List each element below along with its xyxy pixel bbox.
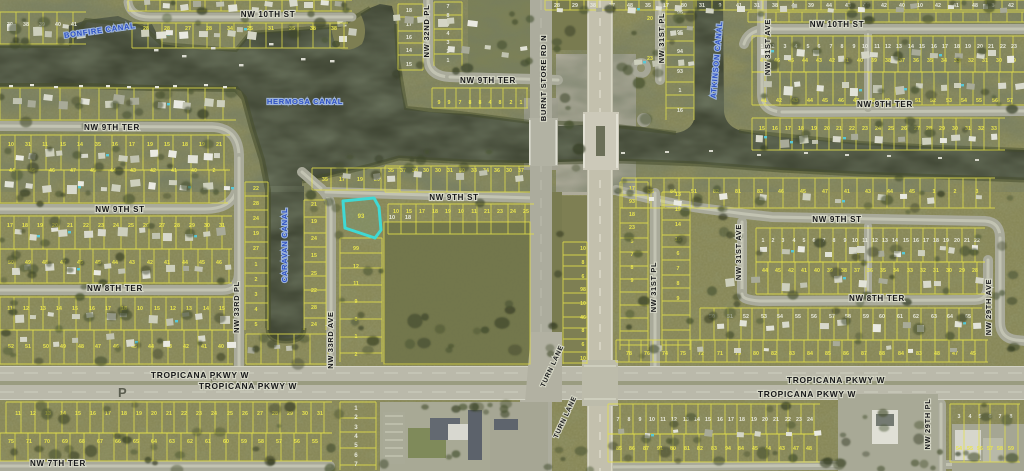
svg-text:TROPICANA PKWY W: TROPICANA PKWY W <box>758 389 856 399</box>
svg-text:23: 23 <box>629 225 635 231</box>
svg-text:NW 32ND PL: NW 32ND PL <box>422 5 431 58</box>
svg-text:10: 10 <box>862 44 868 50</box>
svg-text:8: 8 <box>631 265 634 271</box>
svg-text:21: 21 <box>484 209 490 215</box>
svg-text:16: 16 <box>717 417 723 423</box>
svg-text:98: 98 <box>580 287 586 293</box>
svg-text:1: 1 <box>355 334 358 340</box>
svg-text:NW 31ST PL: NW 31ST PL <box>657 13 666 64</box>
svg-text:23: 23 <box>1011 44 1017 50</box>
svg-text:32: 32 <box>920 268 926 274</box>
svg-text:43: 43 <box>779 446 785 452</box>
svg-text:46: 46 <box>49 168 55 174</box>
svg-text:47: 47 <box>822 189 828 195</box>
svg-text:NW 10TH ST: NW 10TH ST <box>241 10 296 19</box>
svg-text:29: 29 <box>959 268 965 274</box>
svg-text:35: 35 <box>645 3 651 9</box>
svg-text:9: 9 <box>438 100 441 106</box>
svg-text:NW 31ST AVE: NW 31ST AVE <box>763 19 772 75</box>
svg-text:94: 94 <box>725 446 731 452</box>
svg-text:10: 10 <box>580 356 586 362</box>
svg-text:33: 33 <box>991 126 997 132</box>
svg-text:39: 39 <box>871 58 877 64</box>
svg-text:TROPICANA PKWY W: TROPICANA PKWY W <box>199 381 297 391</box>
svg-text:17: 17 <box>7 223 13 229</box>
svg-text:26: 26 <box>242 411 248 417</box>
svg-text:19: 19 <box>147 142 153 148</box>
svg-text:14: 14 <box>56 306 62 312</box>
svg-text:15: 15 <box>759 126 765 132</box>
svg-text:47: 47 <box>793 446 799 452</box>
svg-text:42: 42 <box>183 344 189 350</box>
svg-text:59: 59 <box>1008 446 1014 452</box>
svg-text:4: 4 <box>255 307 258 313</box>
svg-text:15: 15 <box>311 253 317 259</box>
svg-text:30: 30 <box>946 268 952 274</box>
svg-text:16: 16 <box>772 126 778 132</box>
svg-text:81: 81 <box>735 189 741 195</box>
svg-text:30: 30 <box>302 411 308 417</box>
svg-text:25: 25 <box>523 209 529 215</box>
svg-text:24: 24 <box>311 236 317 242</box>
svg-text:18: 18 <box>121 411 127 417</box>
svg-text:15: 15 <box>903 238 909 244</box>
svg-text:42: 42 <box>788 268 794 274</box>
svg-text:8: 8 <box>582 328 585 334</box>
svg-text:44: 44 <box>807 98 813 104</box>
svg-text:21: 21 <box>166 411 172 417</box>
svg-text:14: 14 <box>203 306 209 312</box>
svg-text:45: 45 <box>970 351 976 357</box>
svg-text:30: 30 <box>423 168 429 174</box>
svg-text:3: 3 <box>255 292 258 298</box>
svg-text:31: 31 <box>933 268 939 274</box>
svg-text:19: 19 <box>253 231 259 237</box>
svg-text:43: 43 <box>130 168 136 174</box>
svg-text:30: 30 <box>996 58 1002 64</box>
svg-text:30: 30 <box>952 126 958 132</box>
svg-text:38: 38 <box>23 22 29 28</box>
svg-text:11: 11 <box>353 281 359 287</box>
svg-text:16: 16 <box>931 44 937 50</box>
svg-text:71: 71 <box>26 439 32 445</box>
svg-text:5: 5 <box>255 322 258 328</box>
svg-text:58: 58 <box>258 439 264 445</box>
svg-text:43: 43 <box>129 260 135 266</box>
svg-text:1: 1 <box>354 405 358 412</box>
svg-text:36: 36 <box>913 58 919 64</box>
svg-text:56: 56 <box>294 439 300 445</box>
svg-text:43: 43 <box>816 58 822 64</box>
svg-text:16: 16 <box>913 238 919 244</box>
svg-text:29: 29 <box>189 223 195 229</box>
svg-text:61: 61 <box>897 314 903 320</box>
svg-text:70: 70 <box>44 439 50 445</box>
svg-text:17: 17 <box>129 142 135 148</box>
svg-text:2: 2 <box>355 352 358 358</box>
svg-text:9: 9 <box>639 417 642 423</box>
svg-text:46: 46 <box>580 315 586 321</box>
svg-text:20: 20 <box>824 126 830 132</box>
svg-text:9: 9 <box>853 44 856 50</box>
svg-text:38: 38 <box>772 3 778 9</box>
svg-text:CARAVAN CANAL: CARAVAN CANAL <box>280 208 289 283</box>
svg-text:28: 28 <box>253 201 259 207</box>
svg-text:42: 42 <box>776 98 782 104</box>
svg-text:8: 8 <box>841 44 844 50</box>
svg-text:22: 22 <box>253 186 259 192</box>
svg-text:3: 3 <box>354 424 358 431</box>
svg-text:38: 38 <box>885 58 891 64</box>
svg-text:11: 11 <box>471 209 477 215</box>
svg-text:18: 18 <box>182 142 188 148</box>
svg-text:10: 10 <box>389 215 395 221</box>
svg-text:84: 84 <box>738 446 744 452</box>
svg-text:12: 12 <box>353 264 359 270</box>
svg-text:28: 28 <box>206 26 212 32</box>
svg-text:64: 64 <box>947 314 953 320</box>
svg-text:44: 44 <box>826 3 832 9</box>
svg-text:5: 5 <box>807 44 810 50</box>
svg-text:17: 17 <box>942 44 948 50</box>
svg-text:21: 21 <box>216 142 222 148</box>
svg-text:16: 16 <box>677 108 683 114</box>
svg-text:20: 20 <box>647 16 653 22</box>
svg-text:93: 93 <box>677 69 683 75</box>
svg-text:4: 4 <box>447 31 450 37</box>
svg-text:15: 15 <box>75 411 81 417</box>
svg-text:3: 3 <box>784 44 787 50</box>
svg-text:62: 62 <box>187 439 193 445</box>
svg-text:NW 8TH TER: NW 8TH TER <box>849 294 905 303</box>
svg-text:5: 5 <box>354 442 358 449</box>
svg-text:17: 17 <box>923 238 929 244</box>
svg-text:TROPICANA PKWY W: TROPICANA PKWY W <box>787 375 885 385</box>
svg-text:65: 65 <box>133 439 139 445</box>
svg-text:10: 10 <box>580 301 586 307</box>
svg-text:23: 23 <box>497 209 503 215</box>
svg-text:45: 45 <box>199 260 205 266</box>
svg-text:37: 37 <box>854 268 860 274</box>
svg-text:63: 63 <box>931 314 937 320</box>
svg-text:NW 9TH TER: NW 9TH TER <box>857 100 913 109</box>
svg-text:28: 28 <box>174 223 180 229</box>
svg-text:23: 23 <box>796 417 802 423</box>
svg-text:40: 40 <box>55 22 61 28</box>
svg-text:45: 45 <box>775 268 781 274</box>
svg-text:66: 66 <box>115 439 121 445</box>
svg-text:20: 20 <box>954 238 960 244</box>
svg-text:58: 58 <box>997 446 1003 452</box>
svg-text:87: 87 <box>643 446 649 452</box>
svg-text:39: 39 <box>808 3 814 9</box>
svg-text:56: 56 <box>977 446 983 452</box>
svg-text:12: 12 <box>885 44 891 50</box>
svg-text:19: 19 <box>37 223 43 229</box>
svg-text:21: 21 <box>964 238 970 244</box>
svg-text:71: 71 <box>717 351 723 357</box>
svg-text:51: 51 <box>25 344 31 350</box>
svg-text:NW 29TH AVE: NW 29TH AVE <box>984 279 993 336</box>
svg-text:13: 13 <box>40 306 46 312</box>
svg-text:27: 27 <box>257 411 263 417</box>
svg-text:16: 16 <box>89 306 95 312</box>
svg-text:28: 28 <box>311 305 317 311</box>
svg-text:46: 46 <box>778 189 784 195</box>
svg-text:30: 30 <box>204 223 210 229</box>
svg-text:83: 83 <box>711 446 717 452</box>
svg-text:61: 61 <box>205 439 211 445</box>
svg-text:41: 41 <box>761 98 767 104</box>
svg-text:74: 74 <box>662 351 668 357</box>
svg-text:20: 20 <box>762 417 768 423</box>
svg-text:7: 7 <box>459 100 462 106</box>
svg-text:1: 1 <box>255 262 258 268</box>
svg-text:41: 41 <box>844 189 850 195</box>
svg-text:25: 25 <box>888 126 894 132</box>
svg-text:41: 41 <box>801 268 807 274</box>
svg-text:43: 43 <box>865 189 871 195</box>
svg-text:49: 49 <box>60 344 66 350</box>
svg-text:BURNT STORE RD N: BURNT STORE RD N <box>539 35 548 122</box>
svg-text:7: 7 <box>617 417 620 423</box>
svg-text:8: 8 <box>628 417 631 423</box>
svg-text:16: 16 <box>406 35 412 41</box>
svg-text:44: 44 <box>762 268 768 274</box>
svg-text:2: 2 <box>772 238 775 244</box>
svg-text:32: 32 <box>968 58 974 64</box>
svg-text:8: 8 <box>833 238 836 244</box>
svg-text:19: 19 <box>136 411 142 417</box>
svg-text:28: 28 <box>972 268 978 274</box>
svg-text:27: 27 <box>159 223 165 229</box>
svg-text:NW 9TH ST: NW 9TH ST <box>95 205 144 214</box>
svg-text:32: 32 <box>978 126 984 132</box>
svg-text:31: 31 <box>754 3 760 9</box>
svg-text:14: 14 <box>892 238 898 244</box>
svg-text:69: 69 <box>62 439 68 445</box>
svg-text:47: 47 <box>70 168 76 174</box>
svg-text:3: 3 <box>447 40 450 46</box>
svg-text:35: 35 <box>880 268 886 274</box>
svg-text:4: 4 <box>489 100 492 106</box>
svg-text:17: 17 <box>105 306 111 312</box>
svg-text:7: 7 <box>354 461 358 468</box>
svg-text:46: 46 <box>216 260 222 266</box>
svg-text:3: 3 <box>958 414 961 420</box>
svg-text:25: 25 <box>311 271 317 277</box>
svg-text:19: 19 <box>311 219 317 225</box>
svg-text:84: 84 <box>898 351 904 357</box>
svg-text:85: 85 <box>825 351 831 357</box>
svg-text:48: 48 <box>972 3 978 9</box>
svg-text:1: 1 <box>447 58 450 64</box>
svg-text:8: 8 <box>499 100 502 106</box>
svg-text:HERMOSA CANAL: HERMOSA CANAL <box>267 97 343 106</box>
svg-text:19: 19 <box>357 177 363 183</box>
svg-text:34: 34 <box>941 58 947 64</box>
svg-text:41: 41 <box>201 344 207 350</box>
svg-text:31: 31 <box>25 142 31 148</box>
svg-text:18: 18 <box>432 209 438 215</box>
svg-text:TROPICANA PKWY W: TROPICANA PKWY W <box>151 370 249 380</box>
svg-text:37: 37 <box>518 168 524 174</box>
svg-text:2: 2 <box>255 277 258 283</box>
svg-text:86: 86 <box>629 446 635 452</box>
svg-text:17: 17 <box>663 3 669 9</box>
svg-text:35: 35 <box>322 177 328 183</box>
svg-text:18: 18 <box>739 417 745 423</box>
svg-text:44: 44 <box>112 260 118 266</box>
svg-text:9: 9 <box>631 278 634 284</box>
svg-text:NW 29TH PL: NW 29TH PL <box>923 399 932 450</box>
svg-text:15: 15 <box>219 306 225 312</box>
svg-text:1: 1 <box>933 189 936 195</box>
svg-text:40: 40 <box>814 268 820 274</box>
svg-text:12: 12 <box>23 306 29 312</box>
svg-text:19: 19 <box>965 44 971 50</box>
svg-text:80: 80 <box>753 351 759 357</box>
svg-text:55: 55 <box>312 439 318 445</box>
svg-text:1: 1 <box>520 100 523 106</box>
svg-text:30: 30 <box>435 168 441 174</box>
svg-text:7: 7 <box>999 414 1002 420</box>
svg-text:48: 48 <box>806 446 812 452</box>
svg-text:15: 15 <box>60 142 66 148</box>
svg-text:14: 14 <box>77 142 83 148</box>
svg-text:18: 18 <box>954 44 960 50</box>
svg-text:42: 42 <box>147 260 153 266</box>
svg-text:22: 22 <box>849 126 855 132</box>
svg-text:24: 24 <box>211 411 217 417</box>
svg-text:83: 83 <box>916 351 922 357</box>
svg-text:51: 51 <box>915 98 921 104</box>
svg-text:18: 18 <box>933 238 939 244</box>
svg-text:18: 18 <box>22 223 28 229</box>
svg-text:18: 18 <box>406 8 412 14</box>
svg-text:24: 24 <box>311 322 317 328</box>
svg-text:5: 5 <box>803 238 806 244</box>
svg-text:30: 30 <box>506 168 512 174</box>
svg-text:31: 31 <box>317 411 323 417</box>
svg-text:44: 44 <box>148 344 154 350</box>
svg-text:38: 38 <box>310 26 316 32</box>
svg-text:13: 13 <box>882 238 888 244</box>
svg-text:1: 1 <box>679 88 682 94</box>
svg-text:33: 33 <box>471 168 477 174</box>
svg-text:60: 60 <box>879 314 885 320</box>
svg-text:81: 81 <box>684 446 690 452</box>
svg-text:22: 22 <box>1000 44 1006 50</box>
svg-text:10: 10 <box>852 238 858 244</box>
svg-text:12: 12 <box>30 411 36 417</box>
svg-text:4: 4 <box>969 414 972 420</box>
svg-text:14: 14 <box>675 222 681 228</box>
svg-text:6: 6 <box>354 452 358 459</box>
svg-text:78: 78 <box>626 351 632 357</box>
svg-text:82: 82 <box>771 351 777 357</box>
svg-text:44: 44 <box>182 260 188 266</box>
svg-text:51: 51 <box>691 189 697 195</box>
svg-text:15: 15 <box>164 142 170 148</box>
svg-text:31: 31 <box>699 3 705 9</box>
svg-text:36: 36 <box>867 268 873 274</box>
svg-text:22: 22 <box>311 288 317 294</box>
svg-text:48: 48 <box>78 344 84 350</box>
svg-text:2: 2 <box>510 100 513 106</box>
svg-text:29: 29 <box>572 3 578 9</box>
svg-text:42: 42 <box>829 58 835 64</box>
svg-text:18: 18 <box>629 212 635 218</box>
svg-text:57: 57 <box>829 314 835 320</box>
svg-text:15: 15 <box>919 44 925 50</box>
svg-text:14: 14 <box>406 48 412 54</box>
svg-text:25: 25 <box>227 411 233 417</box>
svg-text:54: 54 <box>956 446 962 452</box>
svg-text:13: 13 <box>675 192 681 198</box>
svg-text:P: P <box>118 385 127 400</box>
svg-text:25: 25 <box>128 223 134 229</box>
svg-text:86: 86 <box>843 351 849 357</box>
svg-text:52: 52 <box>743 314 749 320</box>
svg-text:67: 67 <box>97 439 103 445</box>
svg-text:25: 25 <box>247 26 253 32</box>
svg-text:3: 3 <box>976 189 979 195</box>
svg-text:2: 2 <box>213 168 216 174</box>
svg-text:45: 45 <box>822 98 828 104</box>
svg-text:NW 31ST PL: NW 31ST PL <box>649 262 658 313</box>
svg-text:42: 42 <box>935 3 941 9</box>
svg-text:88: 88 <box>879 351 885 357</box>
svg-text:14: 14 <box>908 44 914 50</box>
svg-text:10: 10 <box>917 3 923 9</box>
svg-text:7: 7 <box>830 44 833 50</box>
svg-text:50: 50 <box>43 344 49 350</box>
svg-text:82: 82 <box>697 446 703 452</box>
svg-text:35: 35 <box>95 142 101 148</box>
svg-text:NW 9TH ST: NW 9TH ST <box>429 193 478 202</box>
svg-text:27: 27 <box>185 26 191 32</box>
svg-text:2: 2 <box>954 189 957 195</box>
svg-text:46: 46 <box>838 98 844 104</box>
svg-text:42: 42 <box>150 168 156 174</box>
svg-text:84: 84 <box>807 351 813 357</box>
svg-text:11: 11 <box>874 44 880 50</box>
svg-text:1: 1 <box>762 238 765 244</box>
svg-text:20: 20 <box>151 411 157 417</box>
svg-text:53: 53 <box>946 98 952 104</box>
svg-text:3: 3 <box>782 238 785 244</box>
svg-text:23: 23 <box>196 411 202 417</box>
svg-text:12: 12 <box>170 306 176 312</box>
svg-text:24: 24 <box>253 216 259 222</box>
svg-text:35: 35 <box>388 168 394 174</box>
svg-text:11: 11 <box>42 142 48 148</box>
svg-text:44: 44 <box>802 58 808 64</box>
svg-text:33: 33 <box>907 268 913 274</box>
svg-text:72: 72 <box>698 351 704 357</box>
svg-text:10: 10 <box>137 306 143 312</box>
svg-text:59: 59 <box>241 439 247 445</box>
svg-text:NW 10TH ST: NW 10TH ST <box>810 20 865 29</box>
svg-text:48: 48 <box>934 351 940 357</box>
svg-text:60: 60 <box>223 439 229 445</box>
svg-text:NW 9TH ST: NW 9TH ST <box>812 215 861 224</box>
svg-text:8: 8 <box>469 100 472 106</box>
svg-text:29: 29 <box>939 126 945 132</box>
svg-text:55: 55 <box>976 98 982 104</box>
svg-text:10: 10 <box>580 246 586 252</box>
